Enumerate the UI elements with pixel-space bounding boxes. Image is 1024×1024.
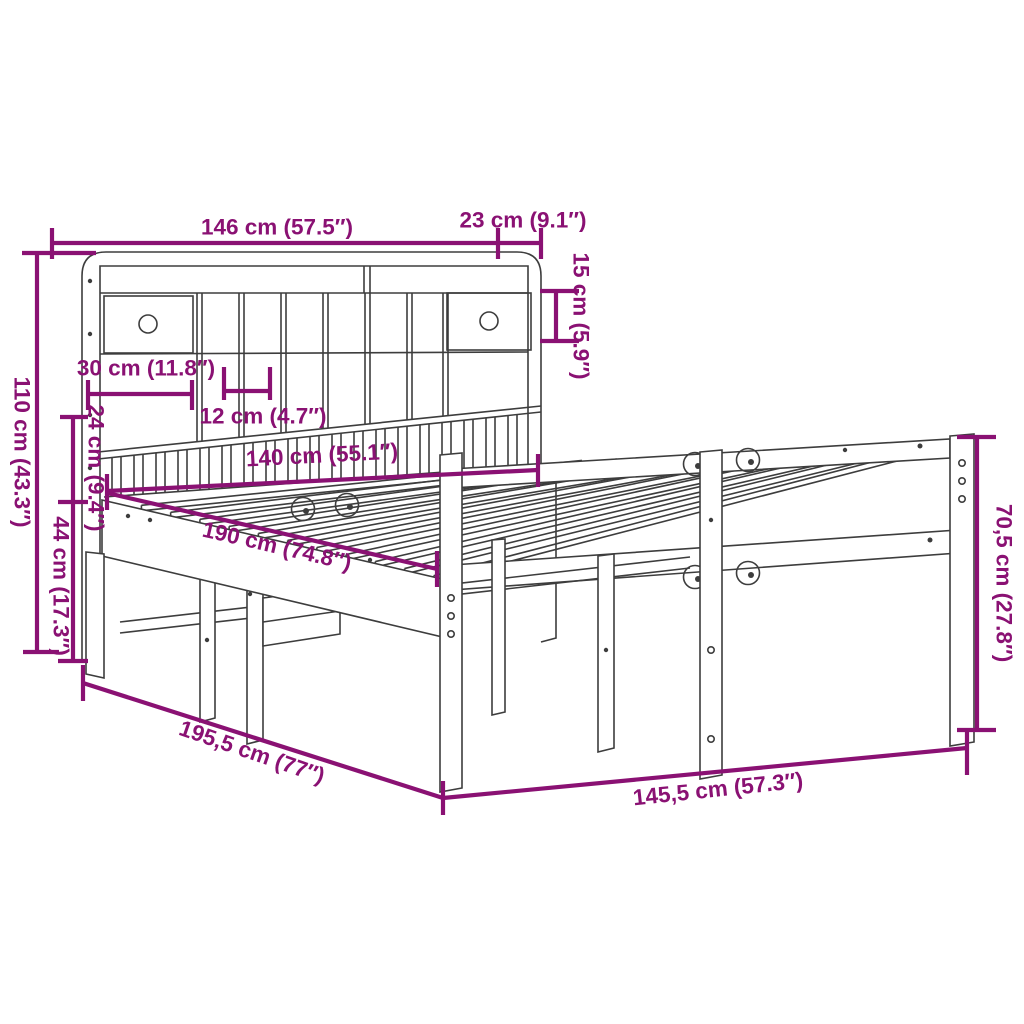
dim-footboard-height-label: 70,5 cm (27.8″) [992, 504, 1017, 662]
dim-compartment-width-label: 12 cm (4.7″) [199, 404, 326, 429]
bed-dimension-diagram-page: 146 cm (57.5″) 23 cm (9.1″) 15 cm (5.9″)… [0, 0, 1024, 1024]
dim-shelf-gap-height-label: 24 cm (9.4″) [84, 404, 109, 531]
left-drawer [104, 296, 193, 353]
dim-compartment-width-line [224, 367, 270, 400]
right-drawer-knob [480, 312, 498, 330]
dim-headboard-height-label: 110 cm (43.3″) [10, 377, 35, 528]
dim-headboard-side-depth-label: 23 cm (9.1″) [459, 208, 586, 233]
dim-frame-height-label: 44 cm (17.3″) [49, 516, 74, 656]
footboard-near-post [440, 453, 462, 792]
dim-headboard-width-label: 146 cm (57.5″) [201, 215, 353, 240]
dim-top-shelf-height-label: 15 cm (5.9″) [569, 252, 594, 379]
right-drawer [447, 293, 531, 350]
bed-dimension-diagram: 146 cm (57.5″) 23 cm (9.1″) 15 cm (5.9″)… [0, 0, 1024, 1024]
headboard-front-leg [86, 552, 104, 678]
dim-drawer-width-label: 30 cm (11.8″) [77, 356, 215, 381]
left-drawer-knob [139, 315, 157, 333]
